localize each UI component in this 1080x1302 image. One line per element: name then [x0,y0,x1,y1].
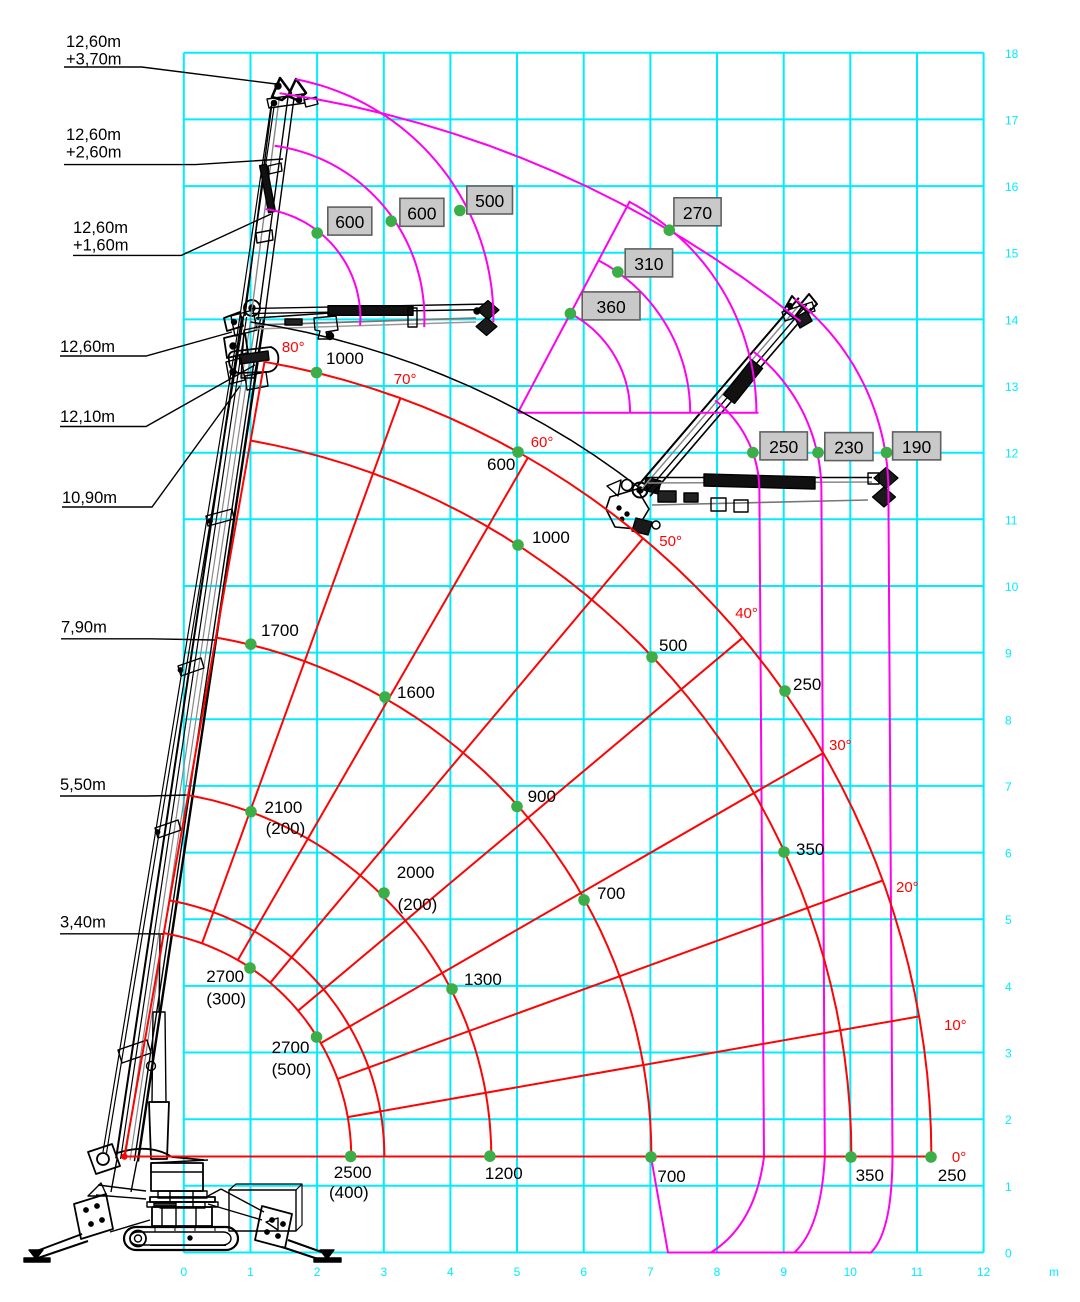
svg-text:270: 270 [683,203,712,223]
svg-text:310: 310 [634,254,663,274]
svg-text:10: 10 [1005,580,1019,594]
svg-text:3: 3 [1005,1047,1012,1061]
svg-text:2700: 2700 [206,967,244,986]
svg-text:12: 12 [977,1265,991,1279]
svg-text:80°: 80° [282,339,305,356]
svg-text:1000: 1000 [532,528,570,547]
svg-text:5,50m: 5,50m [60,776,106,794]
svg-text:1600: 1600 [397,683,435,702]
svg-text:11: 11 [1005,513,1018,527]
svg-text:20°: 20° [896,879,919,896]
svg-text:14: 14 [1005,313,1019,327]
svg-text:+3,70m: +3,70m [66,50,122,68]
svg-text:2: 2 [1005,1113,1012,1127]
svg-text:3,40m: 3,40m [60,914,106,932]
svg-text:11: 11 [911,1265,924,1279]
svg-text:12,60m: 12,60m [73,219,128,237]
svg-text:17: 17 [1005,113,1019,127]
svg-text:70°: 70° [394,371,417,388]
svg-text:(400): (400) [329,1183,369,1202]
svg-text:60°: 60° [531,434,554,451]
svg-text:2000: 2000 [397,863,435,882]
svg-text:8: 8 [714,1265,721,1279]
svg-text:18: 18 [1005,47,1019,61]
svg-text:10: 10 [844,1265,858,1279]
svg-text:2: 2 [314,1265,321,1279]
svg-text:(200): (200) [398,895,438,914]
svg-text:1700: 1700 [261,621,299,640]
svg-text:(300): (300) [206,990,246,1009]
svg-text:12,60m: 12,60m [60,338,115,356]
svg-text:12,60m: 12,60m [66,33,121,51]
svg-text:600: 600 [487,455,515,474]
svg-text:350: 350 [856,1166,884,1185]
svg-text:230: 230 [834,438,863,458]
svg-text:1000: 1000 [326,349,364,368]
svg-text:50°: 50° [659,533,682,550]
svg-text:0: 0 [180,1265,187,1279]
svg-text:250: 250 [769,437,798,457]
svg-text:5: 5 [1005,913,1012,927]
svg-text:4: 4 [1005,980,1012,994]
svg-text:16: 16 [1005,180,1019,194]
svg-text:900: 900 [528,787,556,806]
svg-text:6: 6 [580,1265,587,1279]
svg-text:(200): (200) [266,819,306,838]
svg-text:250: 250 [938,1166,966,1185]
svg-text:7,90m: 7,90m [61,619,107,637]
svg-text:500: 500 [659,636,687,655]
svg-text:12: 12 [1005,447,1019,461]
svg-text:1200: 1200 [485,1164,523,1183]
svg-text:8: 8 [1005,713,1012,727]
svg-text:7: 7 [1005,780,1012,794]
svg-text:190: 190 [902,437,931,457]
svg-text:0: 0 [1005,1247,1012,1261]
svg-text:m: m [1049,1265,1059,1279]
svg-text:360: 360 [596,297,625,317]
svg-text:2500: 2500 [334,1163,372,1182]
svg-text:3: 3 [380,1265,387,1279]
svg-text:9: 9 [780,1265,787,1279]
svg-text:350: 350 [796,840,824,859]
svg-text:700: 700 [657,1167,685,1186]
svg-text:1300: 1300 [464,970,502,989]
svg-text:4: 4 [447,1265,454,1279]
svg-text:2700: 2700 [272,1038,310,1057]
svg-text:700: 700 [597,884,625,903]
svg-text:40°: 40° [735,605,758,622]
svg-text:30°: 30° [829,737,852,754]
svg-text:+1,60m: +1,60m [73,236,129,254]
svg-text:+2,60m: +2,60m [66,143,122,161]
svg-text:250: 250 [793,675,821,694]
svg-text:9: 9 [1005,647,1012,661]
svg-text:500: 500 [475,191,504,211]
svg-text:6: 6 [1005,847,1012,861]
svg-text:10,90m: 10,90m [62,489,117,507]
svg-text:13: 13 [1005,380,1019,394]
svg-text:600: 600 [335,212,364,232]
svg-text:2100: 2100 [265,798,303,817]
svg-text:12,10m: 12,10m [60,408,115,426]
svg-text:(500): (500) [272,1060,312,1079]
svg-text:1: 1 [1005,1180,1012,1194]
svg-text:7: 7 [647,1265,654,1279]
svg-text:5: 5 [514,1265,521,1279]
svg-text:1: 1 [247,1265,254,1279]
svg-text:15: 15 [1005,247,1019,261]
svg-text:12,60m: 12,60m [66,126,121,144]
svg-text:600: 600 [407,203,436,223]
svg-text:10°: 10° [944,1017,967,1034]
svg-text:0°: 0° [952,1149,966,1166]
